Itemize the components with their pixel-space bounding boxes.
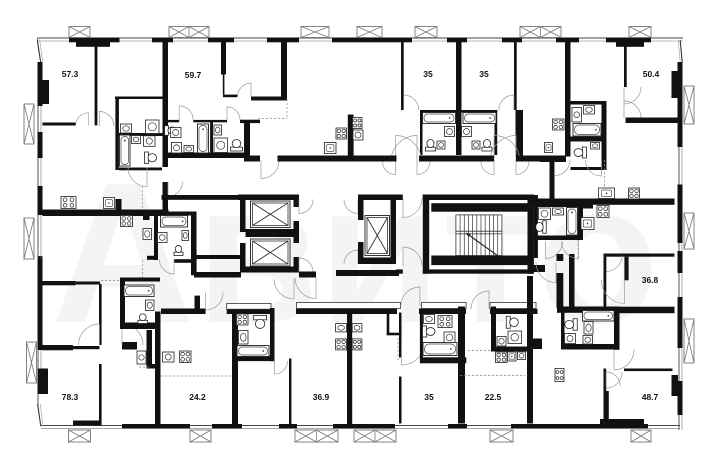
svg-text:36.8: 36.8 <box>642 275 659 285</box>
svg-text:35: 35 <box>424 392 434 402</box>
svg-text:35: 35 <box>423 69 433 79</box>
svg-text:35: 35 <box>479 69 489 79</box>
svg-text:57.3: 57.3 <box>62 69 79 79</box>
svg-text:59.7: 59.7 <box>185 70 202 80</box>
svg-text:22.5: 22.5 <box>485 392 502 402</box>
svg-text:48.7: 48.7 <box>642 392 659 402</box>
svg-text:24.2: 24.2 <box>189 392 206 402</box>
svg-text:36.9: 36.9 <box>313 392 330 402</box>
svg-text:50.4: 50.4 <box>643 69 660 79</box>
svg-text:78.3: 78.3 <box>62 392 79 402</box>
